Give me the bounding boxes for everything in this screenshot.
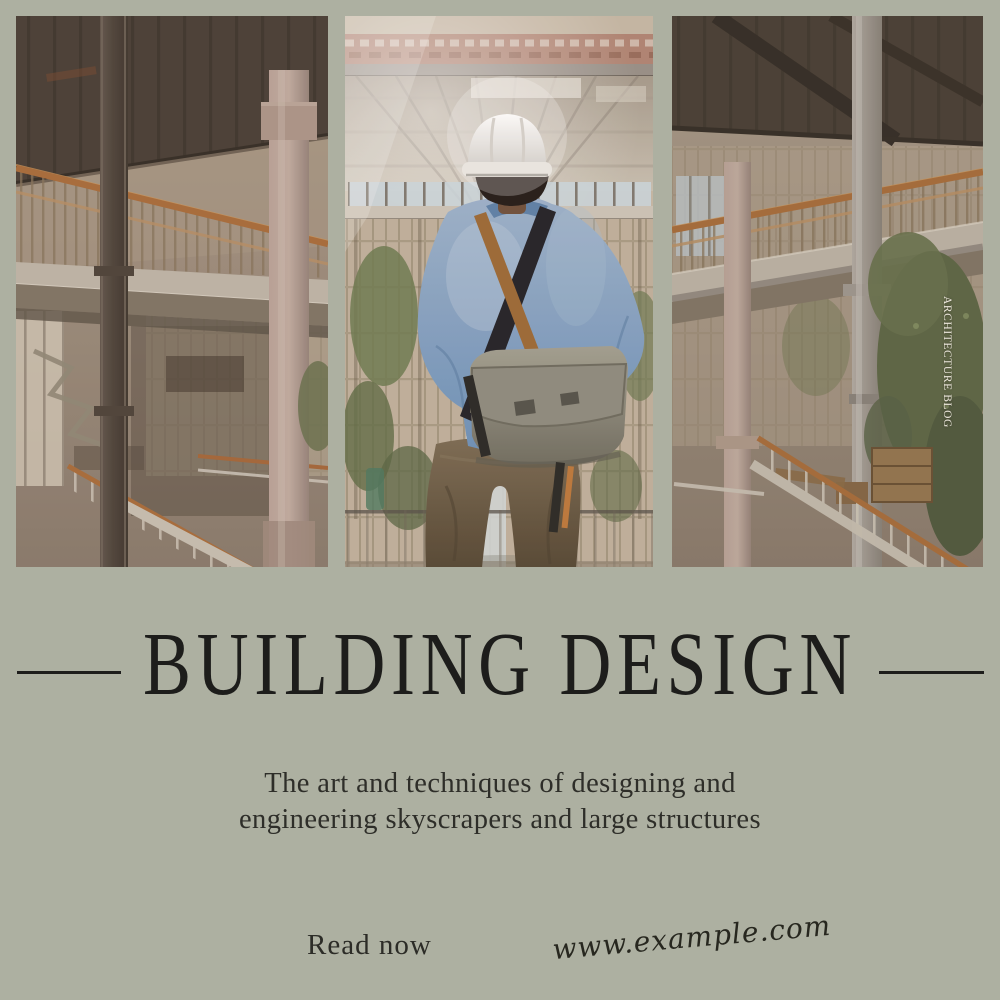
subtitle-line-2: engineering skyscrapers and large struct… [0,802,1000,838]
architecture-blog-vertical-label: ARCHITECTURE BLOG [941,296,953,428]
title-rule-right [879,671,984,674]
website-link[interactable]: www.example.com [551,909,832,966]
construction-scene [16,16,983,567]
page-title: BUILDING DESIGN [100,620,900,710]
blog-post-graphic: ARCHITECTURE BLOG BUILDING DESIGN The ar… [0,0,1000,1000]
subtitle-line-1: The art and techniques of designing and [0,766,1000,802]
panel-gap-left [328,16,345,567]
photo-collage: ARCHITECTURE BLOG [16,16,983,567]
panel-gap-right [653,16,672,567]
read-now-link[interactable]: Read now [307,929,432,962]
subtitle: The art and techniques of designing and … [0,766,1000,838]
